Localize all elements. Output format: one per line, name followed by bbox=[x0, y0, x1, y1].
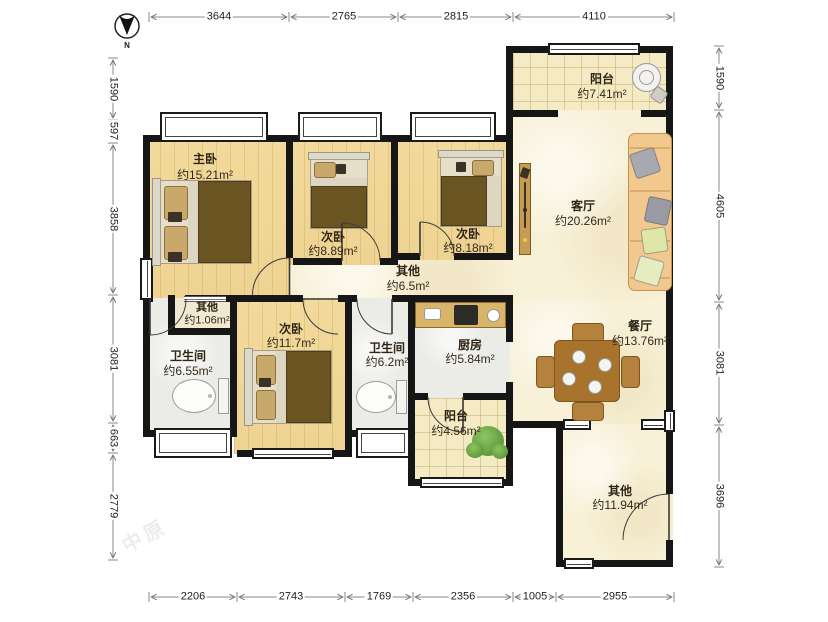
dim-right: 3696 bbox=[714, 482, 725, 510]
room-name-balcony1: 阳台 bbox=[590, 73, 614, 85]
room-area-master: 约15.21m² bbox=[177, 169, 233, 181]
dim-right: 3081 bbox=[714, 349, 725, 377]
wall-segment bbox=[506, 421, 563, 428]
stove bbox=[454, 305, 478, 325]
wall-segment bbox=[506, 302, 513, 342]
room-name-hall: 其他 bbox=[396, 265, 420, 277]
bed-accent bbox=[259, 378, 271, 387]
bay-window bbox=[356, 428, 410, 458]
bay-window bbox=[298, 112, 382, 142]
bed-accent bbox=[168, 212, 182, 222]
room-name-closet: 其他 bbox=[196, 303, 218, 314]
wall-segment bbox=[641, 110, 673, 117]
sofa-seam bbox=[630, 190, 670, 192]
room-area-balcony1: 约7.41m² bbox=[577, 88, 626, 100]
dim-top: 4110 bbox=[580, 12, 608, 23]
room-area-closet: 约1.06m² bbox=[184, 316, 229, 327]
washing-machine-drum bbox=[639, 70, 654, 85]
dim-bottom: 2356 bbox=[449, 592, 477, 603]
wall-segment bbox=[230, 295, 237, 437]
bed-sheet bbox=[188, 181, 198, 263]
bay-window bbox=[160, 112, 268, 142]
bay-window bbox=[410, 112, 496, 142]
wall-segment bbox=[391, 142, 398, 265]
tv-line bbox=[524, 182, 526, 228]
bed-accent bbox=[456, 162, 466, 172]
bed-sheet bbox=[487, 176, 501, 226]
dim-right: 1590 bbox=[714, 64, 725, 92]
bed-blanket bbox=[198, 181, 251, 263]
dim-bottom: 2743 bbox=[277, 592, 305, 603]
dim-left: 2779 bbox=[108, 492, 119, 520]
room-area-bedroom4: 约11.7m² bbox=[267, 337, 315, 349]
plate bbox=[572, 350, 586, 364]
dim-left: 3081 bbox=[108, 345, 119, 373]
balcony-window bbox=[548, 43, 640, 55]
room-area-hall: 约6.5m² bbox=[387, 280, 430, 292]
bed-blanket bbox=[311, 186, 367, 228]
floor-plan: 中原 中原 中原 中原 中原 bbox=[0, 0, 828, 622]
room-name-bath1: 卫生间 bbox=[170, 350, 206, 362]
tv-knob bbox=[523, 238, 527, 242]
dim-left: 597 bbox=[108, 120, 119, 142]
toilet-flush bbox=[208, 394, 212, 398]
toilet-flush bbox=[388, 395, 392, 399]
plate bbox=[562, 372, 576, 386]
sofa-cushion bbox=[640, 226, 668, 254]
room-name-bedroom4: 次卧 bbox=[279, 323, 303, 335]
bed-blanket bbox=[441, 176, 487, 226]
dim-top: 2815 bbox=[442, 12, 470, 23]
wall-segment bbox=[556, 428, 563, 567]
room-name-bath2: 卫生间 bbox=[369, 342, 405, 354]
bay-window bbox=[154, 428, 232, 458]
window bbox=[641, 419, 666, 430]
pillow bbox=[256, 390, 276, 420]
kitchen-sink bbox=[424, 308, 441, 320]
plant bbox=[492, 444, 508, 459]
dim-bottom: 2206 bbox=[179, 592, 207, 603]
wall-segment bbox=[506, 53, 513, 258]
dining-table bbox=[554, 340, 620, 402]
dim-top: 3644 bbox=[205, 12, 233, 23]
bed-accent bbox=[336, 164, 346, 174]
dim-right: 4605 bbox=[714, 192, 725, 220]
wall-segment bbox=[286, 142, 293, 258]
pillow bbox=[314, 162, 336, 178]
room-name-bedroom3: 次卧 bbox=[456, 228, 480, 240]
wall-segment bbox=[398, 253, 420, 260]
dim-top: 2765 bbox=[330, 12, 358, 23]
dim-left: 1590 bbox=[108, 75, 119, 103]
window bbox=[664, 410, 675, 432]
dim-left: 663 bbox=[108, 427, 119, 449]
room-name-bedroom2: 次卧 bbox=[321, 231, 345, 243]
room-area-bedroom3: 约8.18m² bbox=[443, 242, 492, 254]
window bbox=[564, 558, 594, 569]
tv-knob bbox=[523, 208, 527, 212]
toilet-tank bbox=[218, 378, 229, 414]
dining-chair bbox=[572, 402, 604, 421]
bed-blanket bbox=[286, 351, 331, 423]
dining-chair bbox=[536, 356, 555, 388]
dim-bottom: 2955 bbox=[601, 592, 629, 603]
room-area-living: 约20.26m² bbox=[555, 215, 611, 227]
room-name-living: 客厅 bbox=[571, 200, 595, 212]
wall-segment bbox=[506, 382, 513, 486]
plate bbox=[588, 380, 602, 394]
room-name-dining: 餐厅 bbox=[628, 320, 652, 332]
dim-bottom: 1769 bbox=[365, 592, 393, 603]
room-area-bath2: 约6.2m² bbox=[366, 356, 409, 368]
room-name-master: 主卧 bbox=[193, 153, 217, 165]
wall-segment bbox=[293, 258, 342, 265]
watermark: 中原 bbox=[116, 510, 172, 558]
room-area-kitchen: 约5.84m² bbox=[445, 353, 494, 365]
room-area-bath1: 约6.55m² bbox=[163, 365, 212, 377]
window bbox=[420, 477, 504, 488]
room-area-entry: 约11.94m² bbox=[592, 499, 647, 511]
room-name-entry: 其他 bbox=[608, 485, 632, 497]
pillow bbox=[472, 160, 494, 176]
room-name-kitchen: 厨房 bbox=[458, 339, 482, 351]
compass-icon bbox=[115, 14, 139, 38]
dining-chair bbox=[621, 356, 640, 388]
window bbox=[252, 448, 334, 459]
room-area-balcony2: 约4.56m² bbox=[431, 425, 480, 437]
dim-bottom: 1005 bbox=[521, 592, 549, 603]
bed-sheet bbox=[276, 351, 286, 423]
wall-segment bbox=[168, 328, 237, 335]
plate bbox=[598, 358, 612, 372]
room-area-dining: 约13.76m² bbox=[612, 335, 668, 347]
bed-accent bbox=[168, 252, 182, 262]
room-area-bedroom2: 约8.89m² bbox=[308, 245, 357, 257]
sink-bowl bbox=[487, 309, 500, 322]
room-name-balcony2: 阳台 bbox=[444, 410, 468, 422]
wall-segment bbox=[408, 393, 428, 400]
wall-segment bbox=[513, 110, 558, 117]
toilet-tank bbox=[396, 380, 407, 414]
plant bbox=[466, 442, 484, 458]
dim-left: 3858 bbox=[108, 205, 119, 233]
compass-north-label: N bbox=[122, 42, 132, 50]
